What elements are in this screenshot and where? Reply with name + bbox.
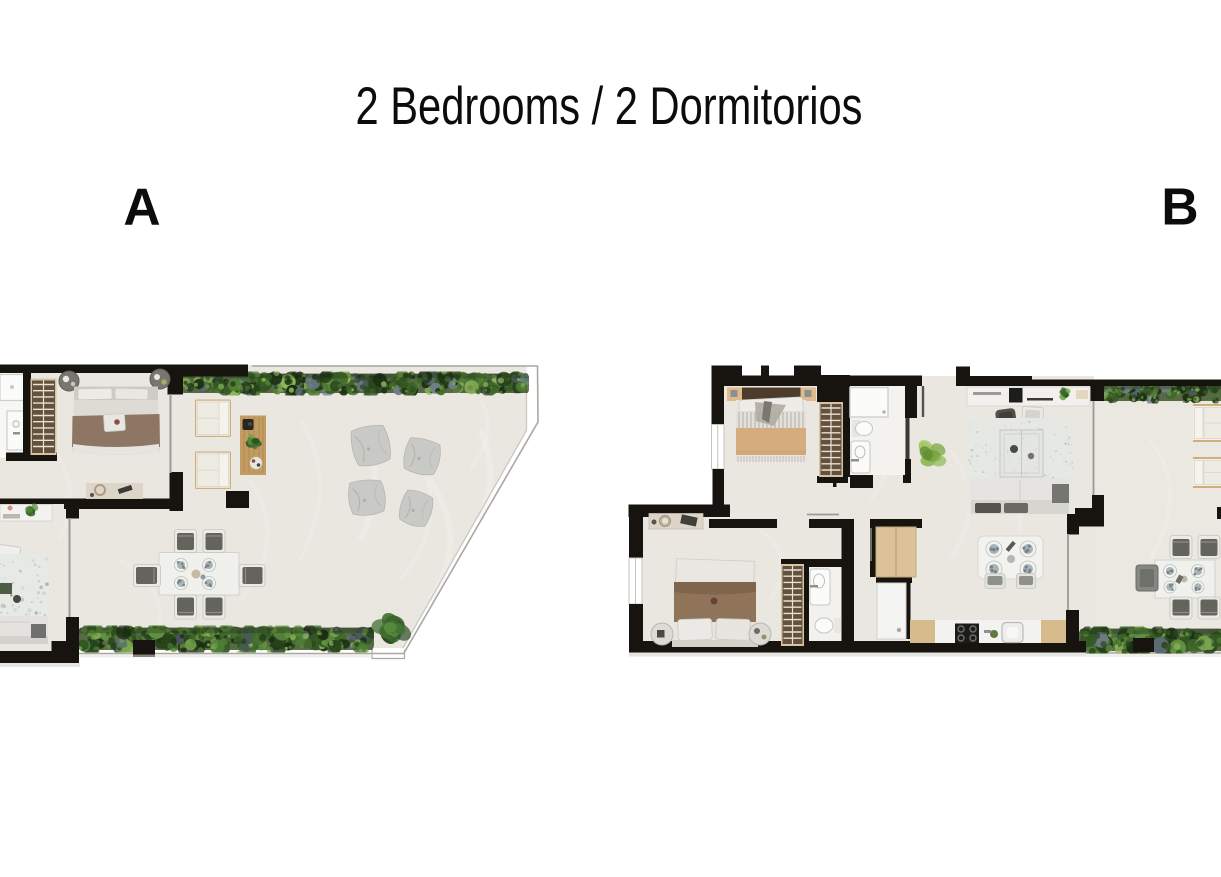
svg-text:B: B [1161, 178, 1198, 236]
svg-text:A: A [123, 178, 160, 236]
svg-text:2 Bedrooms / 2 Dormitorios: 2 Bedrooms / 2 Dormitorios [356, 77, 863, 136]
